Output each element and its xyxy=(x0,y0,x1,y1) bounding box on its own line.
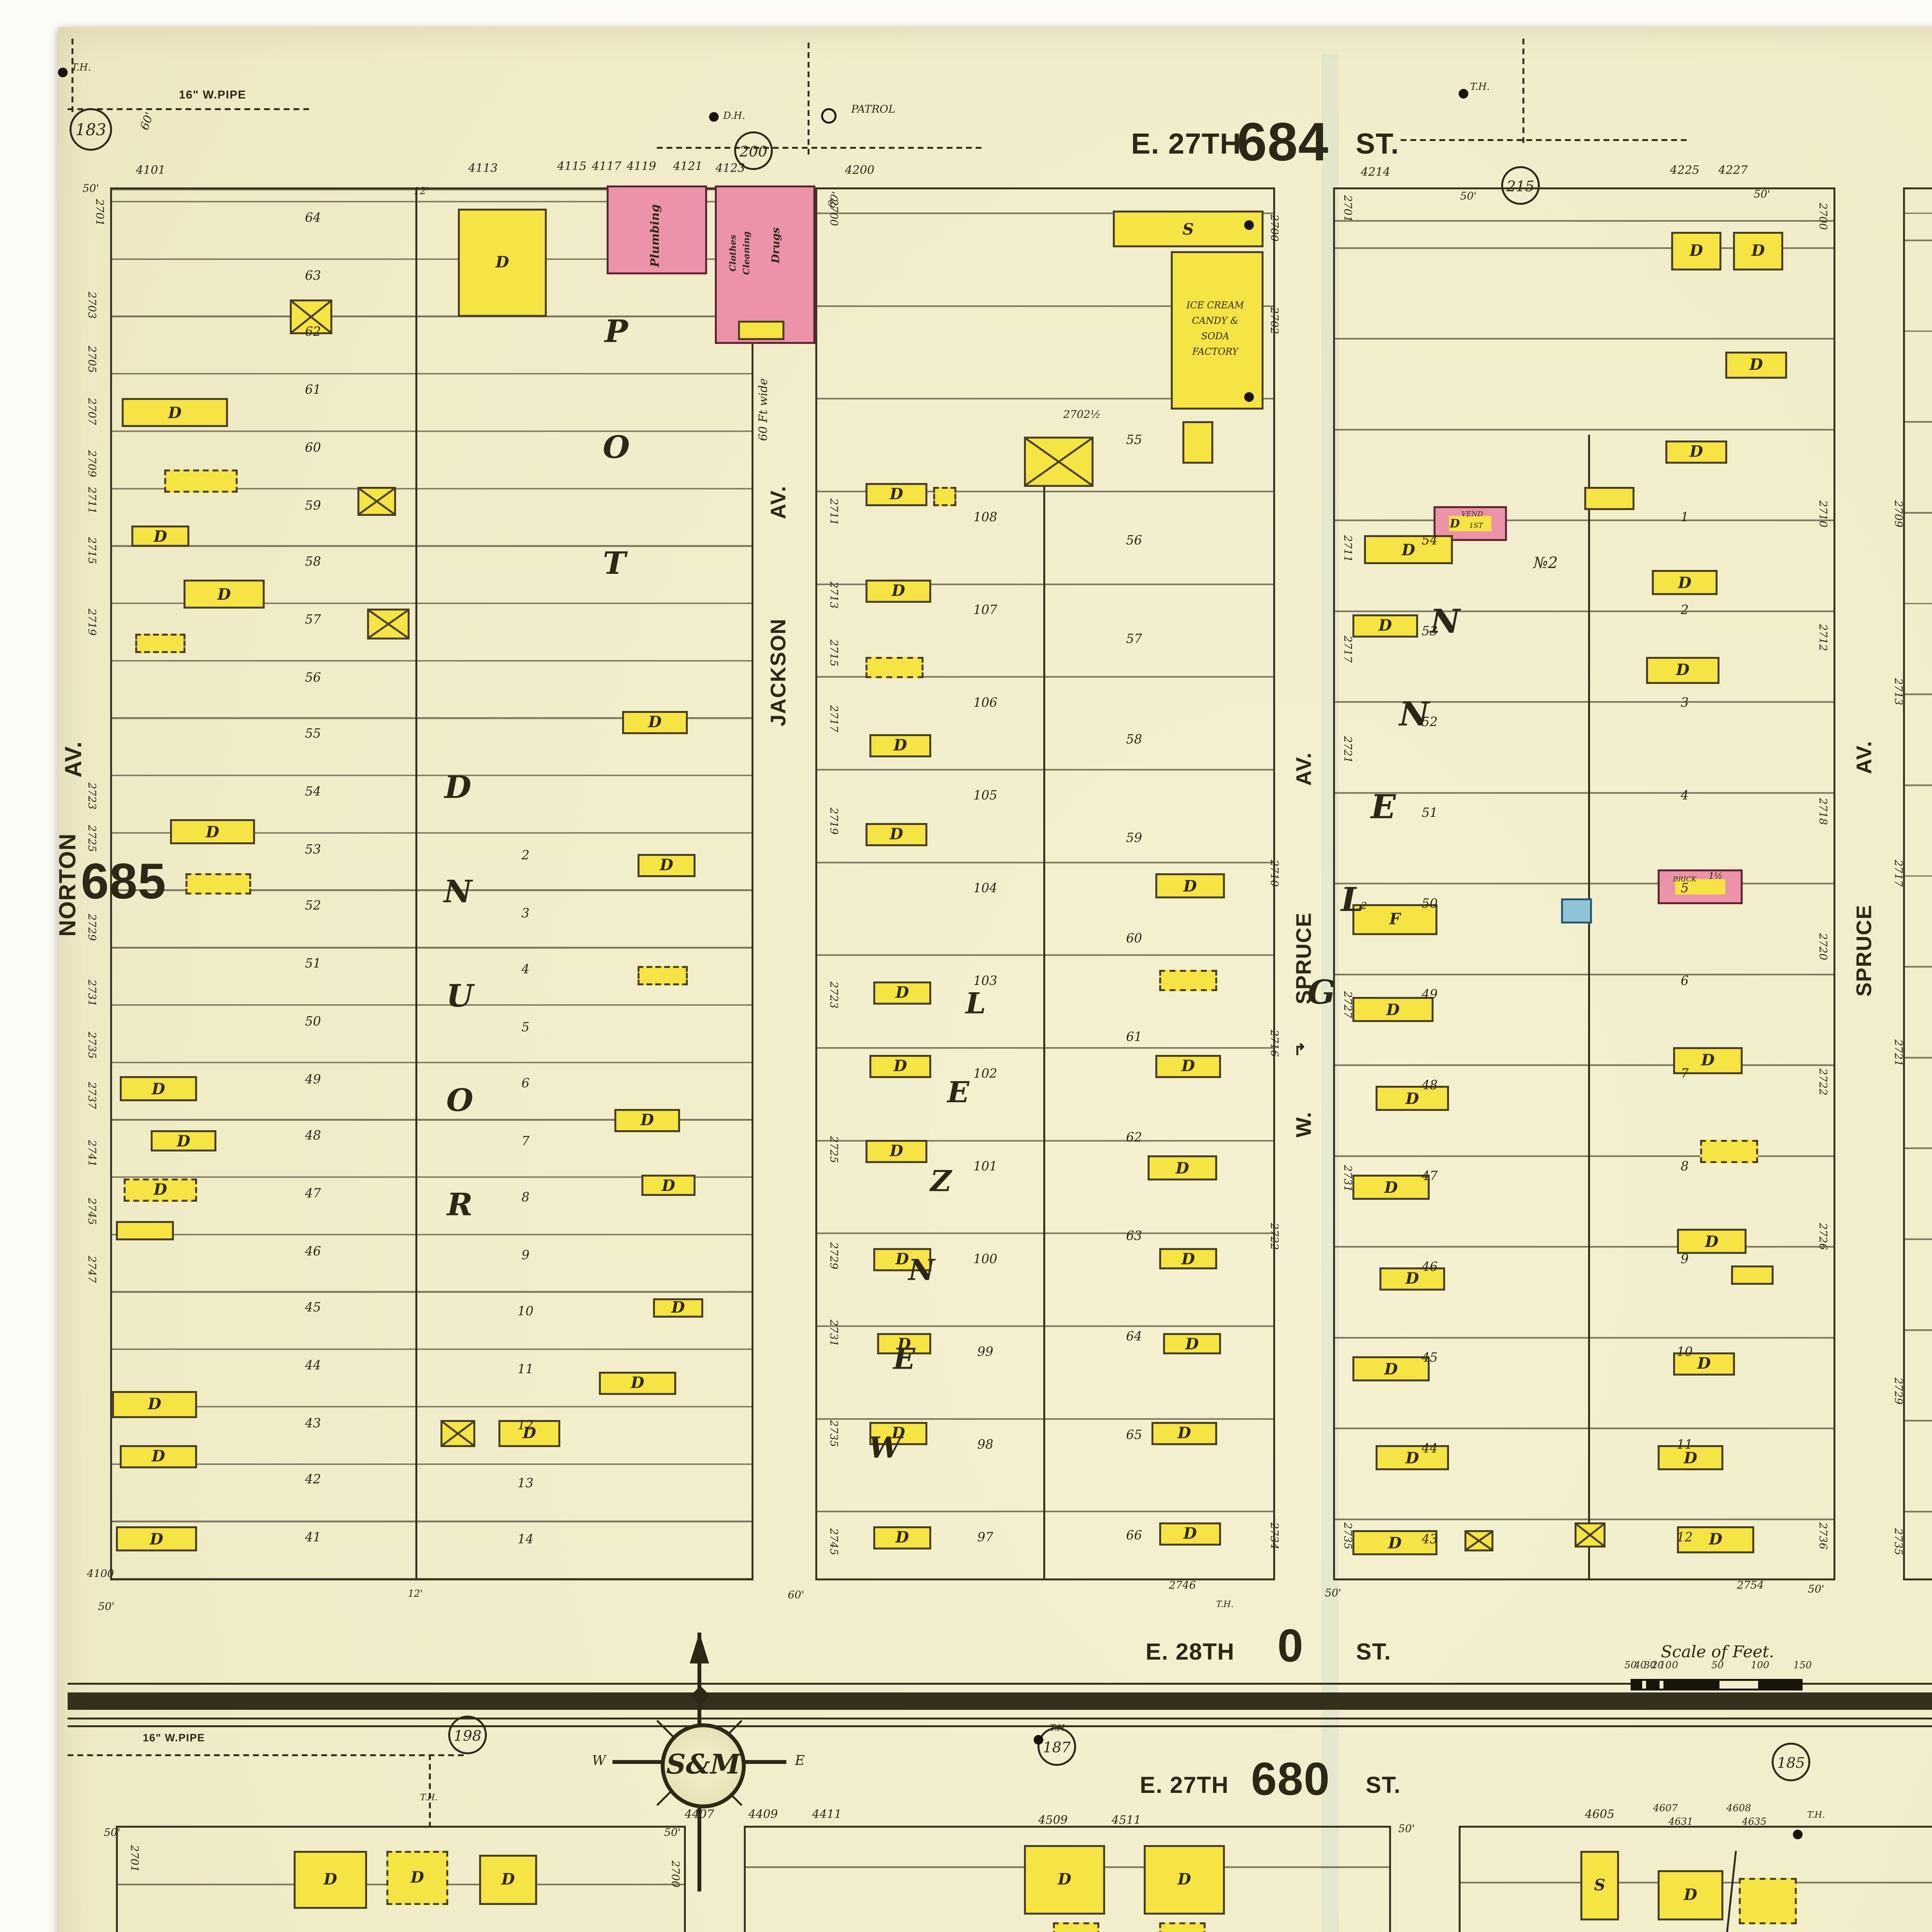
dwelling-mark: D xyxy=(168,402,182,421)
map-number: 2735 xyxy=(83,1032,94,1059)
building-frame: D xyxy=(1376,1086,1449,1111)
map-number: 2723 xyxy=(83,782,94,810)
dwelling-mark: D xyxy=(1176,1157,1189,1177)
dwelling-mark: D xyxy=(894,735,907,754)
map-number: 4 xyxy=(522,964,530,976)
map-number: 100 xyxy=(973,1253,997,1266)
map-number: 2735 xyxy=(1339,1522,1350,1549)
map-number: 50' xyxy=(98,1604,115,1615)
subdivision-letter: Cleaning xyxy=(745,231,754,275)
dwelling-mark: D xyxy=(1701,1050,1715,1069)
dwelling-mark: D xyxy=(1388,1532,1402,1551)
map-number: 2713 xyxy=(825,582,836,609)
map-number: 66 xyxy=(1126,1529,1142,1541)
dwelling-mark: D xyxy=(206,821,219,840)
dwelling-mark: D xyxy=(1709,1529,1723,1548)
map-number: 1ST xyxy=(1469,524,1483,531)
building-frame xyxy=(1739,1878,1797,1924)
map-number: 64 xyxy=(1126,1330,1142,1342)
dwelling-mark: D xyxy=(1384,1177,1398,1196)
map-number: 9 xyxy=(1681,1253,1689,1266)
dwelling-mark: D xyxy=(1690,240,1703,260)
map-number: 50' xyxy=(83,186,99,197)
dwelling-mark: D xyxy=(152,1078,165,1097)
subdivision-letter: O xyxy=(603,433,630,464)
building-frame: D xyxy=(866,580,931,603)
map-number: 47 xyxy=(305,1187,321,1200)
building-frame: D xyxy=(869,1055,931,1078)
subdivision-letter: P xyxy=(605,317,628,348)
dwelling-mark: D xyxy=(1379,615,1392,634)
street-label: W. xyxy=(1296,1111,1317,1137)
street-label: AV. xyxy=(1296,752,1317,786)
map-number: 4117 xyxy=(592,162,621,174)
water-pipe-line xyxy=(808,43,810,155)
map-number: 43 xyxy=(305,1417,321,1430)
map-number: T.H. xyxy=(1470,84,1490,94)
map-number: 49 xyxy=(305,1073,321,1085)
building-frame: D xyxy=(866,1140,927,1163)
map-number: 54 xyxy=(1422,535,1437,548)
map-number: T.H. xyxy=(1807,1814,1825,1823)
map-number: 51 xyxy=(1422,807,1437,820)
building-frame: D xyxy=(1159,1522,1221,1546)
street-label: ST. xyxy=(1356,1640,1391,1663)
map-number: T.H. xyxy=(1216,1603,1234,1612)
scale-segment xyxy=(1718,1679,1760,1690)
map-number: 57 xyxy=(1126,633,1142,646)
dwelling-mark: D xyxy=(152,1446,165,1465)
building-frame: D xyxy=(1658,1870,1723,1920)
building-frame: D xyxy=(151,1130,216,1151)
building-frame: D xyxy=(1677,1229,1747,1254)
map-number: 2731 xyxy=(1339,1165,1350,1192)
map-number: 6 xyxy=(522,1078,530,1090)
map-number: 2722 xyxy=(1815,1068,1825,1095)
building-frame xyxy=(1464,1530,1493,1551)
building-frame: D xyxy=(386,1851,448,1905)
building-frame: D xyxy=(1352,1356,1430,1381)
building-frame: D xyxy=(873,1526,931,1549)
lot-line xyxy=(415,187,417,1580)
water-pipe-line xyxy=(68,1754,464,1756)
subdivision-letter: D xyxy=(444,773,471,804)
subdivision-letter: U xyxy=(446,981,473,1012)
map-number: T.H. xyxy=(420,1796,438,1805)
dwelling-mark: D xyxy=(660,855,673,874)
map-number: 63 xyxy=(305,269,321,282)
scale-segment xyxy=(1648,1679,1657,1690)
building-frame: D xyxy=(458,209,547,317)
map-number: 49 xyxy=(1422,989,1437,1002)
dwelling-mark: D xyxy=(1402,539,1415,558)
subdivision-letter: Clothes xyxy=(732,235,741,271)
building-frame xyxy=(1182,421,1213,464)
map-number: 2700 xyxy=(1815,203,1825,230)
map-number: 2 xyxy=(1681,604,1689,617)
building-frame: D xyxy=(184,580,265,609)
map-number: 10 xyxy=(1659,1663,1672,1672)
map-number: 2707 xyxy=(83,398,94,425)
map-number: 2705 xyxy=(83,346,94,373)
map-number: 60 xyxy=(305,442,321,454)
map-number: 45 xyxy=(305,1302,321,1315)
map-number: 97 xyxy=(977,1532,993,1544)
building-frame: D xyxy=(1364,535,1453,564)
map-number: 12' xyxy=(408,1591,423,1601)
map-number: 5 xyxy=(522,1020,530,1033)
building-frame: D xyxy=(1148,1155,1217,1180)
dwelling-mark: D xyxy=(1676,660,1690,679)
map-number: 7 xyxy=(1681,1068,1689,1081)
street-label: 680 xyxy=(1251,1758,1330,1804)
map-number: 2729 xyxy=(1890,1378,1901,1405)
building-frame xyxy=(933,487,956,506)
building-brick xyxy=(1658,869,1743,904)
map-number: 2717 xyxy=(825,705,836,732)
scale-segment xyxy=(1657,1679,1666,1690)
map-number: 2716 xyxy=(1266,1030,1277,1057)
water-pipe-line xyxy=(1522,39,1524,143)
map-number: 107 xyxy=(973,604,997,617)
compass-east-label: E xyxy=(795,1755,805,1769)
lot-line xyxy=(68,1725,1932,1727)
map-number: 60 Ft wide xyxy=(759,378,771,441)
building-special xyxy=(1561,898,1592,923)
map-number: 50' xyxy=(1325,1590,1342,1601)
map-number: 41 xyxy=(305,1532,321,1544)
building-frame: D xyxy=(1671,232,1721,270)
street-label: NORTON xyxy=(56,833,79,937)
map-number: 2723 xyxy=(825,981,836,1009)
map-number: 2718 xyxy=(1815,798,1825,825)
dwelling-mark: D xyxy=(894,1056,907,1075)
scale-title: Scale of Feet. xyxy=(1661,1646,1774,1662)
map-number: 0 xyxy=(1672,1663,1678,1672)
subdivision-letter: E xyxy=(947,1079,969,1108)
map-number: 2729 xyxy=(83,914,94,941)
map-number: 4409 xyxy=(748,1810,778,1822)
building-frame: D xyxy=(873,981,931,1005)
map-number: 2722 xyxy=(1266,1223,1277,1250)
map-number: 56 xyxy=(305,671,321,684)
building-frame xyxy=(367,609,410,639)
building-frame: D xyxy=(131,526,189,547)
map-number: 2719 xyxy=(83,609,94,636)
map-number: 2700 xyxy=(825,199,836,226)
map-number: PATROL xyxy=(851,107,895,117)
building-frame: D xyxy=(1155,1055,1221,1078)
building-frame: D xyxy=(294,1851,367,1909)
street-label: JACKSON xyxy=(770,618,791,726)
map-number: 50' xyxy=(1460,194,1477,204)
building-frame: D xyxy=(1352,614,1418,638)
building-frame xyxy=(1575,1522,1605,1548)
scale-segment xyxy=(1760,1679,1803,1690)
survey-circle: 183 xyxy=(70,108,112,151)
subdivision-letter: N xyxy=(908,1257,935,1286)
map-number: 2731 xyxy=(825,1320,836,1347)
building-frame: D xyxy=(1163,1333,1221,1354)
dwelling-mark: D xyxy=(892,580,905,600)
building-frame: D xyxy=(170,819,255,844)
building-frame xyxy=(1731,1265,1774,1285)
map-number: 8 xyxy=(1681,1161,1689,1173)
map-number: 13 xyxy=(517,1476,533,1489)
dwelling-mark: D xyxy=(1386,999,1400,1018)
map-number: 12 xyxy=(1677,1532,1692,1544)
dwelling-mark: D xyxy=(154,526,167,545)
map-number: 52 xyxy=(305,901,321,913)
dwelling-mark: F xyxy=(1389,909,1400,928)
map-number: 5 xyxy=(1681,883,1689,895)
map-number: 2717 xyxy=(1890,860,1901,887)
map-number: 2719 xyxy=(825,808,836,835)
map-number: 12' xyxy=(414,189,429,198)
map-number: 4635 xyxy=(1742,1819,1767,1829)
dwelling-mark: D xyxy=(1752,240,1765,260)
map-number: 2715 xyxy=(83,537,94,564)
water-pipe-line xyxy=(1401,139,1687,141)
building-frame xyxy=(1159,970,1217,991)
lot-line xyxy=(68,1692,1932,1710)
survey-circle: 200 xyxy=(734,131,773,170)
subdivision-letter: Plumbing xyxy=(651,204,663,267)
map-number: 62 xyxy=(305,327,321,340)
building-frame xyxy=(1584,487,1634,510)
building-frame: D xyxy=(1725,352,1787,379)
water-pipe-line xyxy=(429,1754,431,1828)
map-number: 104 xyxy=(973,883,997,895)
map-number: SODA xyxy=(1201,335,1230,345)
dwelling-mark: D xyxy=(1697,1353,1711,1372)
compass-west-label: W xyxy=(592,1755,606,1769)
map-number: 2709 xyxy=(1890,500,1901,527)
scale-baseline xyxy=(1631,1692,1845,1694)
map-number: 2710 xyxy=(1815,500,1825,527)
subdivision-letter: E xyxy=(1371,793,1396,826)
map-number: 45 xyxy=(1422,1352,1437,1365)
map-number: 63 xyxy=(1126,1230,1142,1243)
subdivision-letter: D xyxy=(1450,520,1460,531)
map-number: 2715 xyxy=(825,639,836,667)
building-frame: D xyxy=(869,734,931,757)
dwelling-mark: D xyxy=(1690,441,1703,461)
map-number: 2712 xyxy=(1815,624,1825,651)
map-number: 106 xyxy=(973,697,997,710)
building-frame: D xyxy=(479,1855,537,1905)
map-number: FACTORY xyxy=(1192,351,1238,360)
map-number: 4101 xyxy=(136,166,165,178)
map-number: 61 xyxy=(305,384,321,397)
map-number: 2747 xyxy=(83,1256,94,1283)
scale-segment xyxy=(1639,1679,1648,1690)
building-frame: D xyxy=(1159,1248,1217,1269)
building-frame: D xyxy=(1155,873,1225,898)
map-number: 11 xyxy=(1677,1439,1692,1452)
map-number: 4200 xyxy=(845,166,874,178)
map-number: 44 xyxy=(1422,1443,1437,1456)
map-number: 2725 xyxy=(83,825,94,852)
building-frame: D xyxy=(1733,232,1783,270)
map-number: 50' xyxy=(1754,192,1770,202)
street-label: 684 xyxy=(1237,116,1329,170)
map-number: 53 xyxy=(305,843,321,856)
building-frame: D xyxy=(1352,1175,1430,1200)
building-frame xyxy=(116,1221,174,1240)
map-number: 2721 xyxy=(1339,736,1350,763)
map-number: 4605 xyxy=(1585,1810,1614,1822)
dwelling-mark: D xyxy=(896,1249,909,1268)
compass-monogram: S&M xyxy=(661,1723,746,1808)
building-frame xyxy=(185,873,251,895)
dwelling-mark: D xyxy=(411,1867,424,1886)
building-frame: S xyxy=(1580,1851,1619,1920)
map-number: 4123 xyxy=(716,164,745,176)
dwelling-mark: D xyxy=(890,1141,903,1160)
building-frame xyxy=(1024,437,1094,487)
dwelling-mark: D xyxy=(150,1528,163,1548)
street-label: E. 27TH xyxy=(1131,131,1242,160)
map-number: 46 xyxy=(305,1245,321,1258)
dwelling-mark: D xyxy=(672,1297,685,1316)
survey-circle: 187 xyxy=(1037,1727,1076,1766)
subdivision-letter: L xyxy=(1341,886,1364,919)
map-number: 2717 xyxy=(1339,636,1350,663)
map-number: 2726 xyxy=(1815,1223,1825,1250)
building-frame: D xyxy=(120,1076,197,1101)
subdivision-letter: T xyxy=(603,549,626,580)
map-number: 3 xyxy=(522,906,530,919)
dwelling-mark: D xyxy=(1678,572,1692,591)
map-number: 4607 xyxy=(1653,1806,1678,1815)
building-frame: S xyxy=(1113,211,1264,247)
map-number: 60 xyxy=(1126,932,1142,944)
map-number: 10 xyxy=(1677,1346,1692,1359)
map-number: 2731 xyxy=(83,980,94,1007)
building-frame: D xyxy=(1652,570,1718,595)
map-number: 4511 xyxy=(1112,1816,1141,1828)
map-number: 61 xyxy=(1126,1031,1142,1044)
building-frame xyxy=(866,657,923,678)
dwelling-mark: D xyxy=(648,712,662,731)
map-number: CANDY & xyxy=(1192,320,1239,329)
map-number: 50' xyxy=(1398,1826,1415,1837)
street-label: ST. xyxy=(1366,1774,1401,1797)
water-pipe-line xyxy=(657,147,981,149)
building-frame: D xyxy=(641,1175,696,1196)
map-number: 2727 xyxy=(1339,991,1350,1018)
map-number: 2754 xyxy=(1737,1583,1764,1594)
map-number: 2735 xyxy=(1890,1528,1901,1555)
map-number: 102 xyxy=(973,1068,997,1081)
building-frame xyxy=(1053,1922,1099,1932)
building-frame: D xyxy=(116,1526,197,1551)
building-frame: D xyxy=(1151,1422,1217,1445)
dwelling-mark: D xyxy=(1058,1869,1071,1888)
map-number: 57 xyxy=(305,614,321,626)
building-frame: D xyxy=(599,1372,676,1395)
map-number: 150 xyxy=(1793,1663,1812,1672)
map-number: 47 xyxy=(1422,1170,1437,1183)
map-number: 2725 xyxy=(825,1136,836,1163)
map-number: 52 xyxy=(1422,716,1437,729)
dwelling-mark: D xyxy=(177,1130,190,1150)
dwelling-mark: D xyxy=(1182,1056,1195,1075)
dwelling-mark: D xyxy=(631,1372,645,1392)
dwelling-mark: D xyxy=(1184,875,1197,895)
dwelling-mark: D xyxy=(890,824,903,843)
map-number: 2710 xyxy=(1266,860,1277,887)
map-number: 4100 xyxy=(87,1571,114,1582)
map-number: 46 xyxy=(1422,1261,1437,1274)
map-number: 2735 xyxy=(825,1420,836,1447)
map-number: 4225 xyxy=(1670,166,1699,178)
map-number: 50' xyxy=(104,1830,121,1841)
building-frame xyxy=(135,634,185,653)
building-frame xyxy=(638,966,688,985)
map-number: 4214 xyxy=(1361,168,1390,180)
street-label: SPRUCE xyxy=(1856,905,1877,997)
map-number: 44 xyxy=(305,1360,321,1372)
map-number: 4608 xyxy=(1726,1806,1751,1815)
map-number: 59 xyxy=(1126,832,1142,845)
dwelling-mark: D xyxy=(1406,1088,1419,1107)
map-number: 14 xyxy=(517,1534,533,1546)
survey-circle: 198 xyxy=(448,1716,487,1754)
subdivision-letter: G xyxy=(1308,979,1336,1012)
map-number: 2701 xyxy=(1339,195,1350,222)
map-number: 64 xyxy=(305,212,321,225)
lot-line xyxy=(1043,440,1045,1580)
map-number: 2701 xyxy=(126,1845,137,1872)
map-number: 2736 xyxy=(1815,1522,1825,1549)
map-number: 2711 xyxy=(1339,535,1350,562)
map-number: 99 xyxy=(977,1346,993,1359)
map-number: 2721 xyxy=(1890,1039,1901,1066)
map-number: 3 xyxy=(1681,697,1689,710)
building-frame xyxy=(1700,1140,1758,1163)
map-number: VEND xyxy=(1461,512,1483,519)
map-number: 50' xyxy=(1808,1587,1825,1597)
map-number: 2737 xyxy=(83,1082,94,1109)
map-number: 4631 xyxy=(1668,1819,1693,1829)
building-frame xyxy=(357,487,396,516)
map-number: 4411 xyxy=(812,1810,842,1822)
subdivision-letter: O xyxy=(446,1086,473,1117)
city-block xyxy=(1903,187,1932,1580)
map-number: 4 xyxy=(1681,790,1689,803)
map-number: 101 xyxy=(973,1161,997,1173)
map-number: 8 xyxy=(522,1192,530,1204)
map-number: 2745 xyxy=(83,1198,94,1225)
map-number: 58 xyxy=(305,556,321,569)
map-number: 4121 xyxy=(673,162,702,174)
dwelling-mark: D xyxy=(154,1179,167,1199)
map-number: 9 xyxy=(522,1248,530,1261)
dwelling-mark: D xyxy=(890,484,903,503)
dwelling-mark: D xyxy=(1406,1268,1419,1287)
map-number: 4119 xyxy=(627,162,656,174)
map-number: 62 xyxy=(1126,1131,1142,1143)
building-frame xyxy=(738,321,784,340)
map-number: 2713 xyxy=(1890,678,1901,705)
map-number: 1½ xyxy=(1709,875,1723,884)
street-label: 0 xyxy=(1277,1625,1304,1671)
map-number: 54 xyxy=(305,786,321,799)
map-number: D.H. xyxy=(723,113,745,123)
map-number: 10 xyxy=(517,1306,533,1318)
